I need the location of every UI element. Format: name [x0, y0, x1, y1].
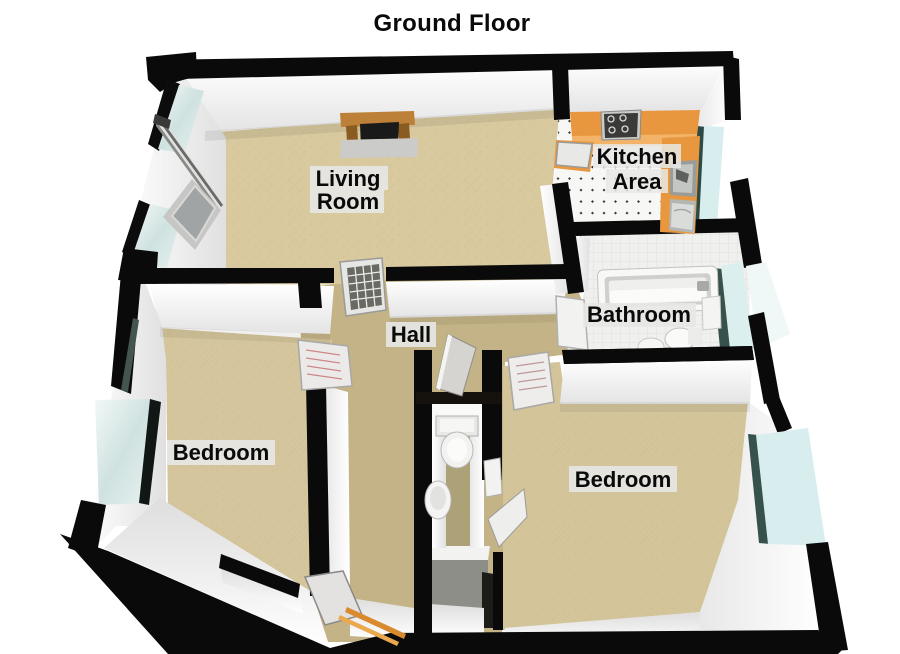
svg-text:Ground Floor: Ground Floor	[374, 10, 531, 37]
svg-text:Bedroom: Bedroom	[173, 440, 270, 465]
svg-text:Room: Room	[317, 189, 379, 214]
svg-text:Bedroom: Bedroom	[575, 467, 672, 492]
svg-text:Hall: Hall	[391, 322, 431, 347]
svg-text:Living: Living	[316, 166, 381, 191]
svg-text:Kitchen: Kitchen	[597, 144, 678, 169]
svg-text:Bathroom: Bathroom	[587, 302, 691, 327]
svg-text:Area: Area	[613, 169, 663, 194]
